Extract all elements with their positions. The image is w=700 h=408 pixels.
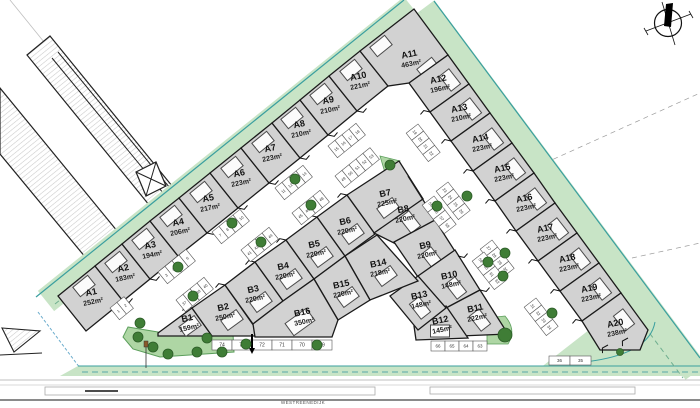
parking-stall-number: 35 (578, 358, 584, 363)
road-marking (430, 387, 635, 394)
existing-building (2, 328, 40, 352)
tree-icon (173, 262, 183, 272)
tree-icon (432, 201, 442, 211)
parking-cluster: 66656463 (431, 341, 487, 351)
tree-icon (188, 291, 198, 301)
street-name-label: WESTREENEDIJK (281, 400, 326, 405)
tree-icon (498, 271, 508, 281)
tree-icon (163, 349, 173, 359)
parking-stall-number: 36 (557, 358, 563, 363)
site-plan-drawing: WESTREENEDIJKA1252m²A2183m²A3194m²A4206m… (0, 0, 700, 408)
tree-icon (217, 347, 227, 357)
tree-icon (192, 347, 202, 357)
tree-icon (617, 349, 624, 356)
tree-icon (498, 328, 512, 342)
tree-icon (312, 340, 322, 350)
parking-stall-number: 70 (299, 343, 305, 349)
boundary-dashed-line (38, 312, 80, 368)
tree-icon (135, 318, 145, 328)
survey-line (632, 243, 700, 258)
tree-icon (241, 339, 251, 349)
tree-icon (227, 218, 237, 228)
tree-icon (148, 342, 158, 352)
tree-icon (483, 257, 493, 267)
parking-cluster: 19202122 (406, 124, 440, 162)
tree-icon (256, 237, 266, 247)
tree-icon (462, 191, 472, 201)
tree-icon (133, 332, 143, 342)
parking-stall-number: 71 (279, 343, 285, 349)
parking-stall-number: 66 (435, 344, 441, 349)
survey-line (545, 93, 700, 163)
tree-icon (290, 174, 300, 184)
parking-stall-number: 65 (449, 344, 455, 349)
tree-icon (500, 248, 510, 258)
parking-cluster: 3635 (549, 356, 591, 365)
tree-icon (202, 333, 212, 343)
green-buffer (78, 366, 700, 376)
parking-stall-number: 72 (259, 343, 265, 349)
parking-stall-number: 64 (463, 344, 469, 349)
parking-stall-number: 63 (477, 344, 483, 349)
plan-canvas: WESTREENEDIJKA1252m²A2183m²A3194m²A4206m… (0, 0, 700, 408)
entrance-marker-arrow (249, 348, 255, 354)
tree-icon (306, 200, 316, 210)
tree-icon (547, 308, 557, 318)
tree-icon (385, 160, 395, 170)
north-arrow-icon (644, 2, 693, 45)
post-icon (144, 341, 148, 347)
